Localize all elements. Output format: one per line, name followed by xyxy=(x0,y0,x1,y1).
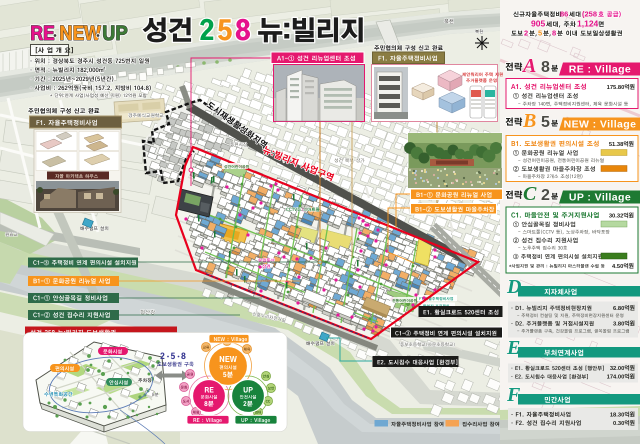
svg-text:2: 2 xyxy=(524,29,528,38)
svg-text:3.80억원: 3.80억원 xyxy=(613,320,635,328)
svg-text:A: A xyxy=(521,55,536,77)
svg-text:51.38억원: 51.38억원 xyxy=(609,140,634,148)
svg-text:0.30억원: 0.30억원 xyxy=(613,419,635,427)
svg-text:174.00억원: 174.00억원 xyxy=(607,373,635,381)
svg-text:5: 5 xyxy=(541,114,550,131)
svg-text:18.30억원: 18.30억원 xyxy=(610,411,635,419)
svg-text:32.00억원: 32.00억원 xyxy=(610,364,635,372)
svg-text:905: 905 xyxy=(531,19,545,29)
svg-text:2: 2 xyxy=(541,187,550,204)
svg-text:175.80억원: 175.80억원 xyxy=(607,83,635,91)
svg-text:86: 86 xyxy=(560,10,568,19)
svg-text:(258: (258 xyxy=(582,10,597,19)
svg-text:UP : Village: UP : Village xyxy=(569,192,631,204)
svg-text:8: 8 xyxy=(541,59,550,76)
svg-text:6.80억원: 6.80억원 xyxy=(613,304,635,312)
svg-text:RE : Village: RE : Village xyxy=(569,64,631,76)
svg-text:NEW : Village: NEW : Village xyxy=(564,119,637,131)
svg-text:30.32억원: 30.32억원 xyxy=(609,212,634,220)
svg-text:5: 5 xyxy=(538,29,542,38)
svg-text:8: 8 xyxy=(552,29,556,38)
svg-text:C: C xyxy=(523,183,537,205)
svg-text:B: B xyxy=(522,110,536,132)
svg-text:4.50억원: 4.50억원 xyxy=(612,262,634,270)
svg-text:1,124: 1,124 xyxy=(577,19,599,29)
